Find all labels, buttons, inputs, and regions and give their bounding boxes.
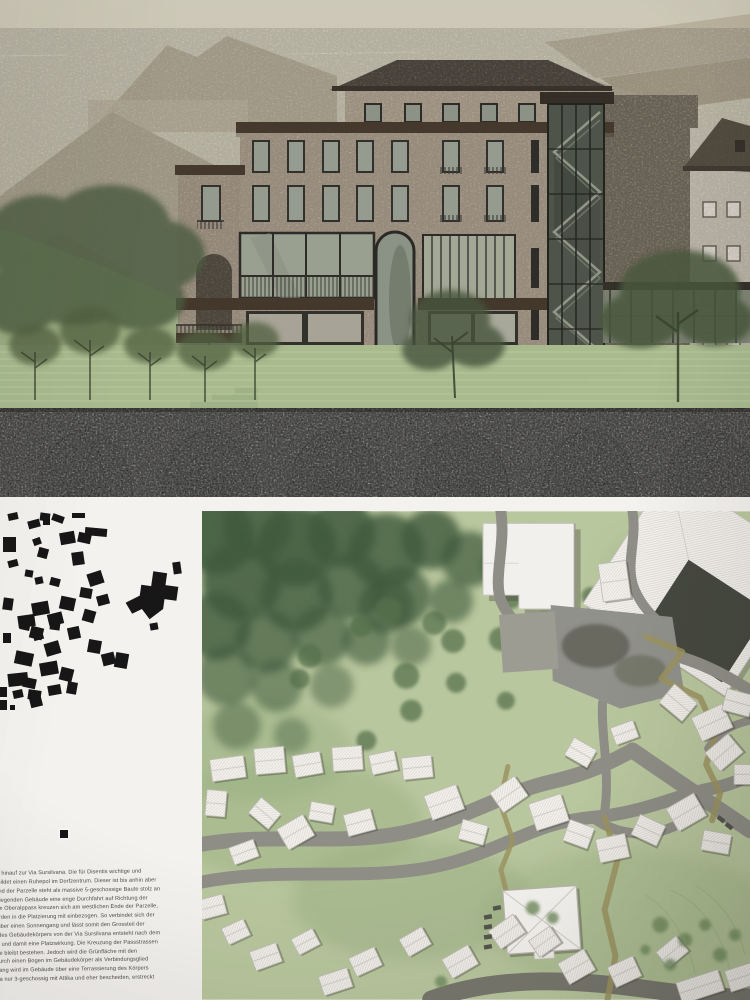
elevation-drawing-panel — [0, 0, 750, 500]
village-building — [292, 751, 326, 780]
village-building — [401, 755, 435, 782]
lower-board-panel: Hang hinauf zur Via Sursilvana. Die für … — [0, 497, 750, 1000]
site-plan-drawing — [202, 511, 750, 1000]
village-building — [205, 790, 229, 820]
project-description-text: Hang hinauf zur Via Sursilvana. Die für … — [0, 867, 208, 994]
figure-ground-landmark-building — [124, 568, 180, 622]
figure-ground-diagram — [0, 510, 200, 800]
village-building — [332, 745, 366, 773]
village-building — [254, 746, 288, 777]
photo-of-architecture-presentation-board: { "board": { "panels": { "top": "buildin… — [0, 0, 750, 1000]
site-marker-square — [60, 830, 68, 838]
village-building — [734, 764, 750, 786]
stone-wall-arches — [0, 408, 750, 500]
elevation-svg — [0, 0, 750, 500]
village-building — [598, 560, 633, 604]
terraced-lawn — [0, 345, 750, 408]
village-building — [210, 755, 249, 784]
